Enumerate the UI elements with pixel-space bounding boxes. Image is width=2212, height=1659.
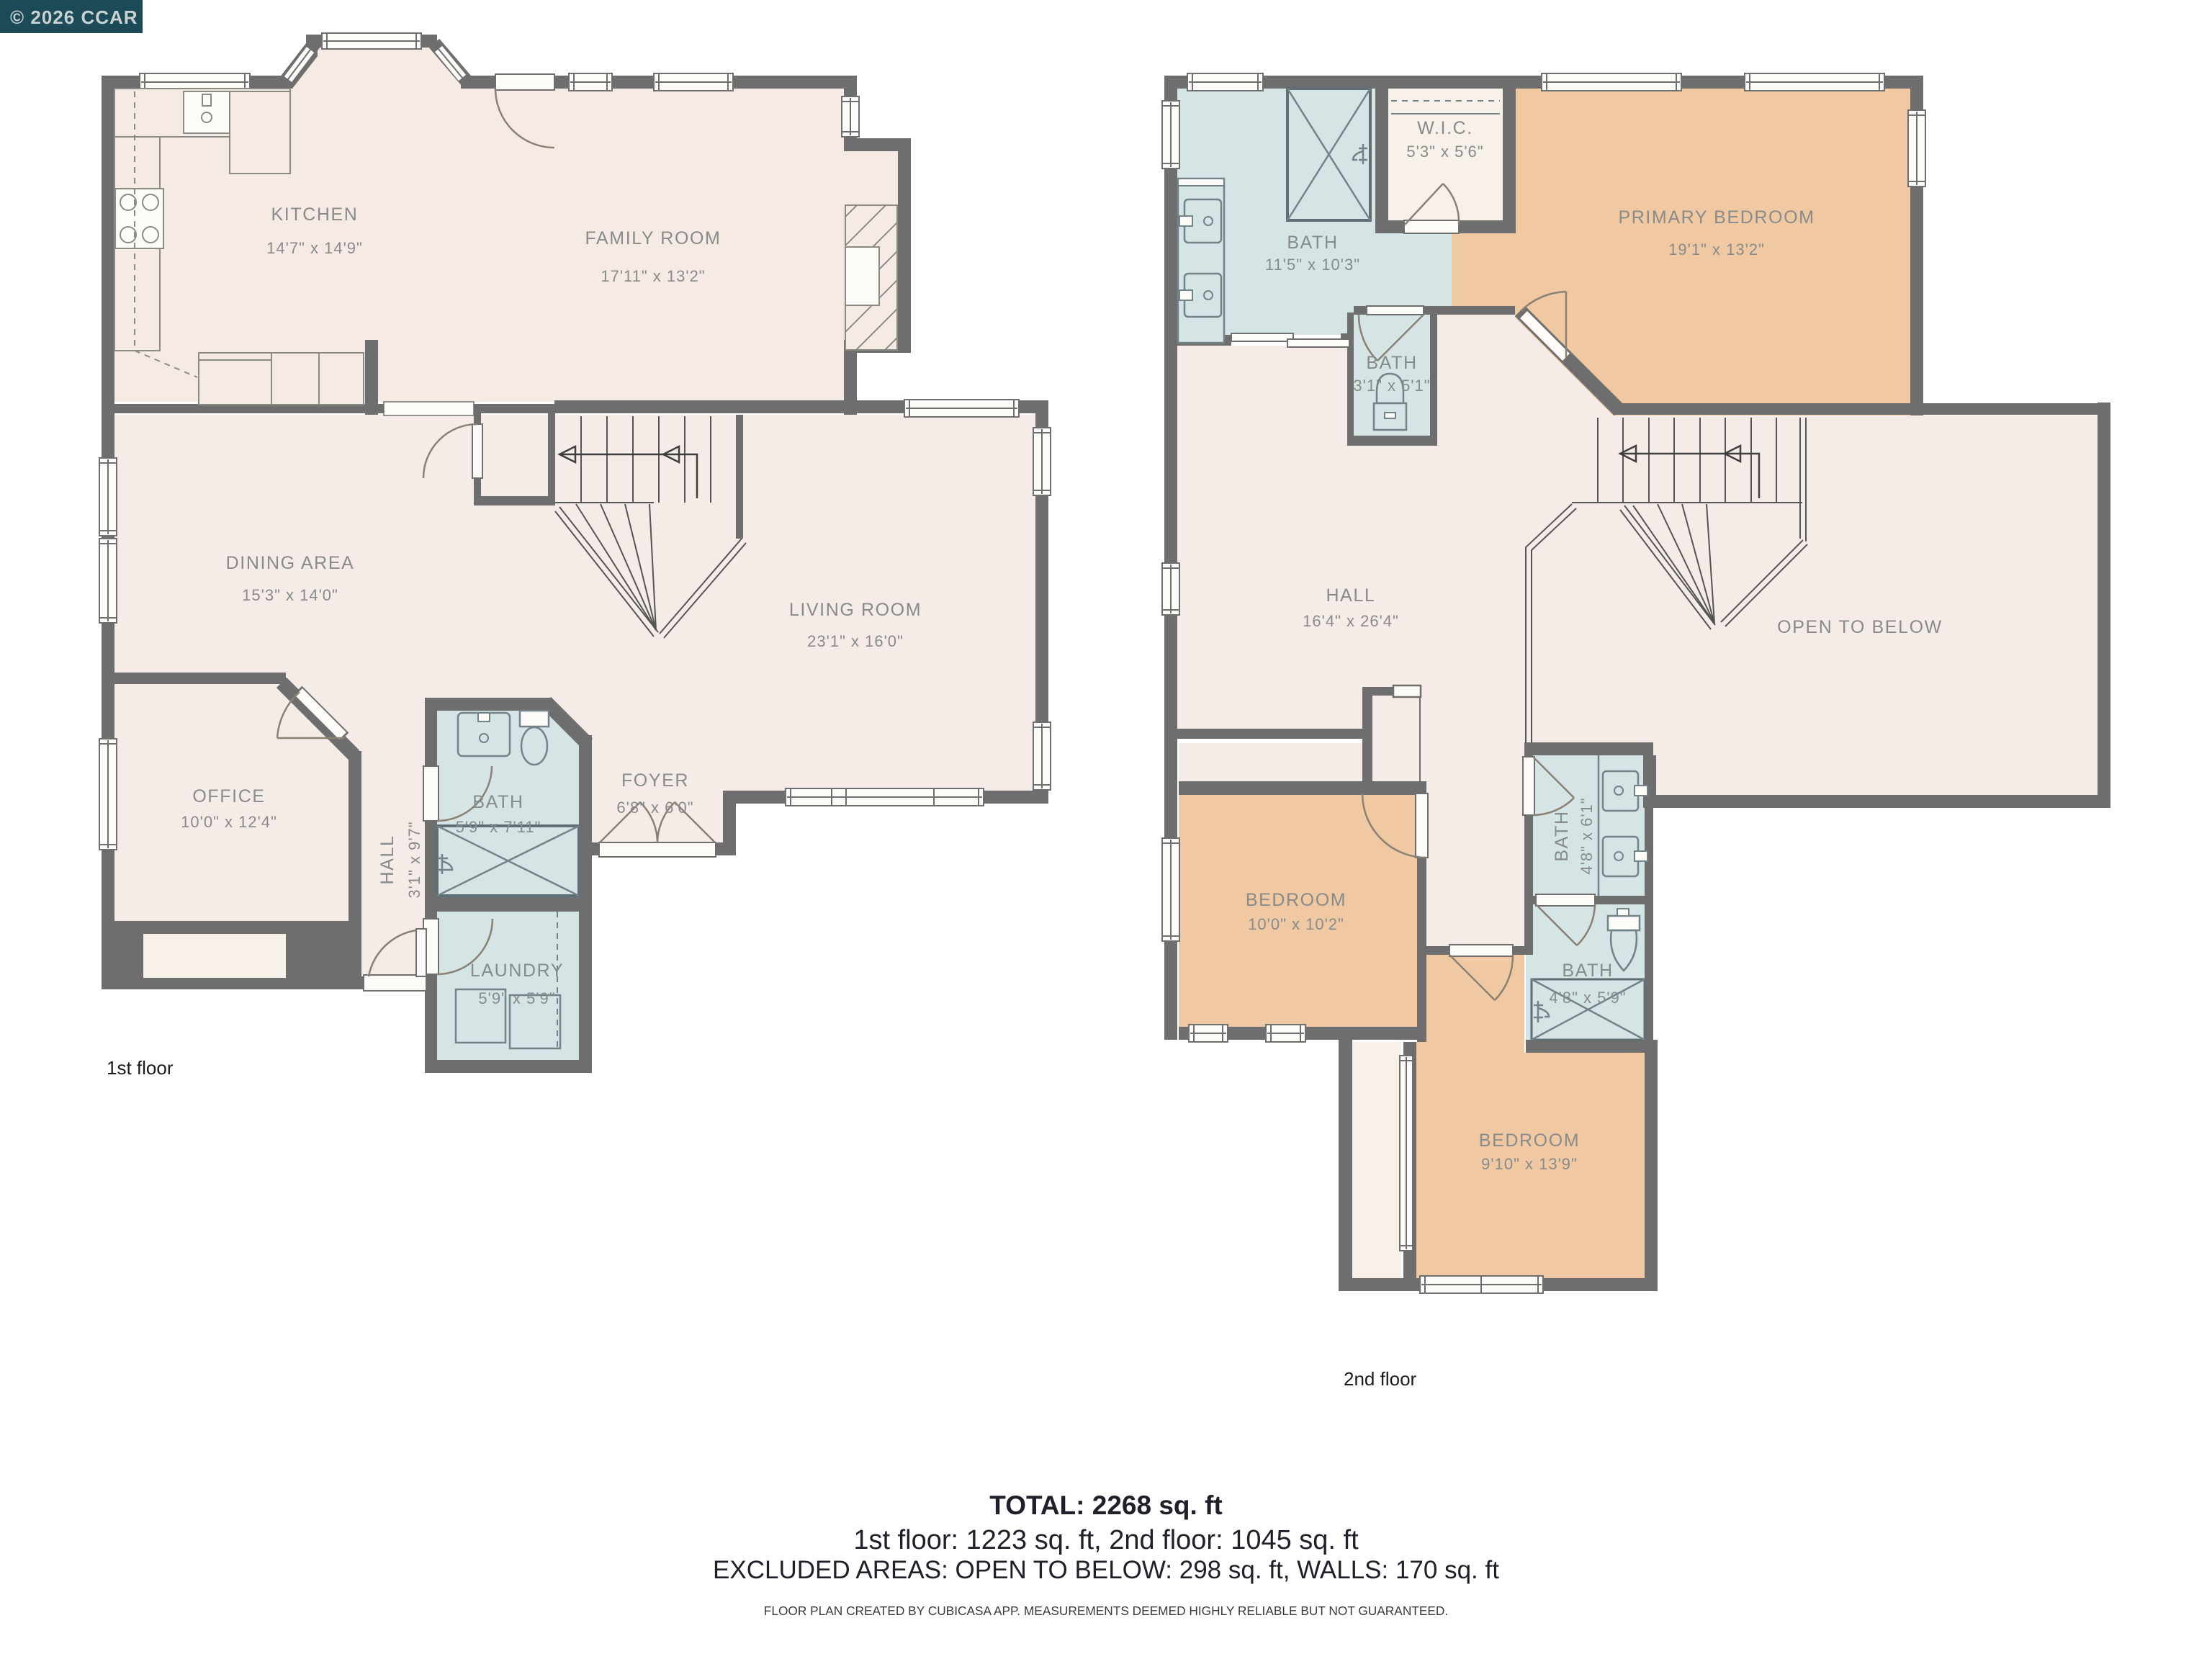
- svg-text:16'4" x 26'4": 16'4" x 26'4": [1303, 612, 1399, 630]
- svg-text:19'1" x 13'2": 19'1" x 13'2": [1668, 240, 1765, 258]
- svg-text:9'10" x 13'9": 9'10" x 13'9": [1481, 1155, 1578, 1173]
- svg-text:1st floor: 1223 sq. ft, 2nd fl: 1st floor: 1223 sq. ft, 2nd floor: 1045 …: [853, 1525, 1359, 1555]
- svg-text:TOTAL: 2268 sq. ft: TOTAL: 2268 sq. ft: [989, 1491, 1222, 1520]
- svg-text:17'11" x 13'2": 17'11" x 13'2": [601, 267, 705, 285]
- svg-text:FAMILY ROOM: FAMILY ROOM: [585, 228, 721, 248]
- svg-text:BATH: BATH: [1287, 233, 1338, 253]
- svg-text:OPEN TO BELOW: OPEN TO BELOW: [1777, 617, 1943, 637]
- svg-text:© 2026 CCAR: © 2026 CCAR: [10, 6, 138, 28]
- svg-text:23'1" x 16'0": 23'1" x 16'0": [807, 632, 904, 650]
- svg-text:5'3" x 5'6": 5'3" x 5'6": [1406, 143, 1483, 161]
- svg-text:FOYER: FOYER: [621, 770, 689, 791]
- svg-text:2nd floor: 2nd floor: [1344, 1368, 1417, 1390]
- svg-text:BATH: BATH: [1552, 810, 1572, 861]
- svg-text:4'8" x 5'9": 4'8" x 5'9": [1549, 989, 1626, 1007]
- svg-text:BATH: BATH: [1562, 961, 1613, 981]
- svg-text:3'1" x 5'1": 3'1" x 5'1": [1353, 377, 1430, 395]
- svg-text:KITCHEN: KITCHEN: [271, 204, 359, 225]
- svg-text:BEDROOM: BEDROOM: [1246, 890, 1346, 910]
- svg-text:W.I.C.: W.I.C.: [1417, 118, 1473, 138]
- svg-text:HALL: HALL: [377, 835, 397, 885]
- svg-text:15'3" x 14'0": 15'3" x 14'0": [242, 586, 338, 604]
- svg-text:5'9" x 7'11": 5'9" x 7'11": [456, 818, 541, 836]
- svg-text:OFFICE: OFFICE: [192, 786, 265, 806]
- svg-text:10'0" x 12'4": 10'0" x 12'4": [181, 813, 277, 831]
- svg-text:5'9" x 5'9": 5'9" x 5'9": [478, 989, 555, 1007]
- svg-text:1st floor: 1st floor: [107, 1057, 174, 1079]
- svg-text:14'7" x 14'9": 14'7" x 14'9": [266, 239, 363, 257]
- svg-text:DINING AREA: DINING AREA: [226, 553, 355, 573]
- svg-text:6'8" x 6'0": 6'8" x 6'0": [616, 799, 693, 817]
- svg-text:EXCLUDED AREAS: OPEN TO BELOW:: EXCLUDED AREAS: OPEN TO BELOW: 298 sq. f…: [713, 1556, 1499, 1584]
- svg-text:LAUNDRY: LAUNDRY: [470, 961, 564, 981]
- svg-text:BEDROOM: BEDROOM: [1479, 1130, 1580, 1151]
- svg-text:LIVING ROOM: LIVING ROOM: [789, 600, 922, 620]
- svg-text:BATH: BATH: [1366, 353, 1417, 373]
- svg-text:3'1" x 9'7": 3'1" x 9'7": [405, 821, 423, 898]
- svg-text:11'5" x 10'3": 11'5" x 10'3": [1265, 256, 1360, 274]
- svg-text:FLOOR PLAN CREATED BY CUBICASA: FLOOR PLAN CREATED BY CUBICASA APP. MEAS…: [764, 1604, 1448, 1618]
- svg-text:10'0" x 10'2": 10'0" x 10'2": [1248, 915, 1344, 933]
- svg-text:4'8" x 6'1": 4'8" x 6'1": [1578, 797, 1596, 874]
- svg-text:HALL: HALL: [1326, 585, 1376, 606]
- svg-text:PRIMARY BEDROOM: PRIMARY BEDROOM: [1618, 207, 1815, 228]
- svg-text:BATH: BATH: [472, 792, 523, 812]
